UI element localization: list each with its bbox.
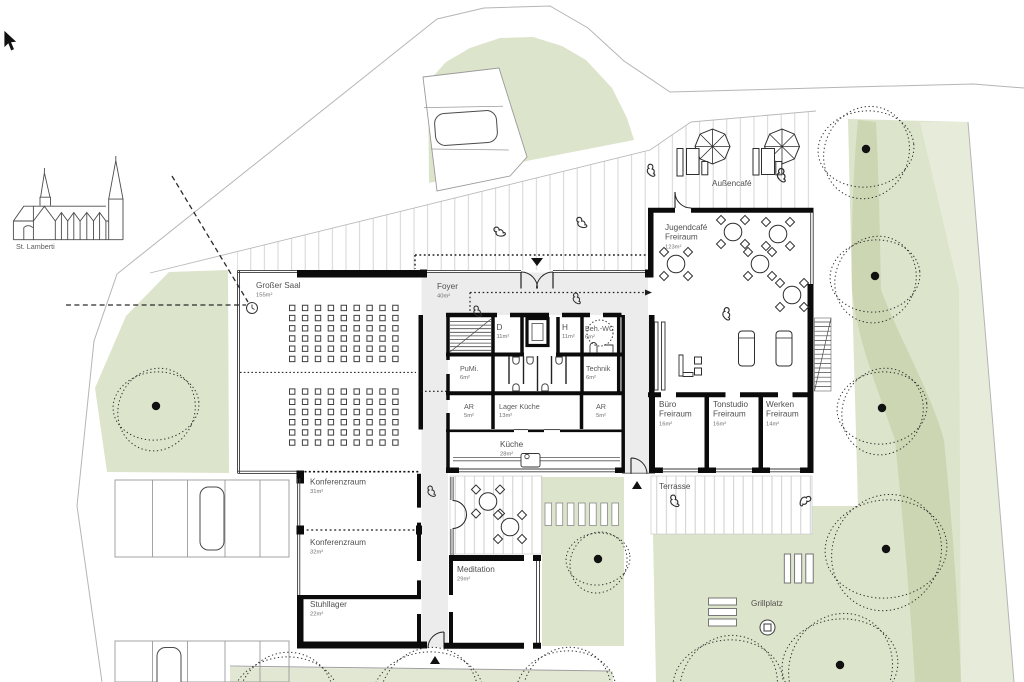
svg-text:28m²: 28m² xyxy=(500,452,513,458)
svg-text:Beh.-WC: Beh.-WC xyxy=(585,324,614,333)
svg-text:Meditation: Meditation xyxy=(457,565,495,574)
svg-text:Außencafé: Außencafé xyxy=(712,179,752,188)
svg-text:Büro: Büro xyxy=(659,400,677,409)
svg-text:5m²: 5m² xyxy=(596,413,606,419)
svg-text:6m²: 6m² xyxy=(460,375,470,381)
svg-text:13m²: 13m² xyxy=(499,413,512,419)
svg-text:AR: AR xyxy=(596,402,606,411)
svg-text:PuMi.: PuMi. xyxy=(460,364,478,373)
svg-text:St. Lamberti: St. Lamberti xyxy=(16,242,55,251)
svg-text:Freiraum: Freiraum xyxy=(665,233,698,242)
svg-text:D: D xyxy=(497,323,503,332)
svg-text:16m²: 16m² xyxy=(713,422,726,428)
svg-text:Tonstudio: Tonstudio xyxy=(713,400,748,409)
svg-text:16m²: 16m² xyxy=(659,422,672,428)
svg-text:Freiraum: Freiraum xyxy=(713,410,746,419)
svg-text:Werken: Werken xyxy=(766,400,795,409)
svg-text:Grillplatz: Grillplatz xyxy=(751,599,783,608)
svg-text:6m²: 6m² xyxy=(586,375,596,381)
svg-text:Küche: Küche xyxy=(500,440,524,449)
svg-text:32m²: 32m² xyxy=(310,550,323,556)
svg-text:22m²: 22m² xyxy=(310,612,323,618)
svg-text:11m²: 11m² xyxy=(562,334,575,340)
svg-text:Technik: Technik xyxy=(586,364,611,373)
svg-text:31m²: 31m² xyxy=(310,489,323,495)
svg-text:Freiraum: Freiraum xyxy=(766,410,799,419)
svg-text:Jugendcafé: Jugendcafé xyxy=(665,223,708,232)
svg-text:29m²: 29m² xyxy=(457,577,470,583)
svg-text:Konferenzraum: Konferenzraum xyxy=(310,478,366,487)
svg-text:14m²: 14m² xyxy=(766,422,779,428)
svg-text:Foyer: Foyer xyxy=(437,282,458,291)
svg-text:5m²: 5m² xyxy=(464,413,474,419)
svg-text:Stuhllager: Stuhllager xyxy=(310,600,347,609)
svg-text:Lager Küche: Lager Küche xyxy=(499,402,540,411)
svg-text:6m²: 6m² xyxy=(585,335,595,341)
svg-text:40m²: 40m² xyxy=(437,294,450,300)
svg-text:Freiraum: Freiraum xyxy=(659,410,692,419)
svg-text:Konferenzraum: Konferenzraum xyxy=(310,538,366,547)
svg-text:Terrasse: Terrasse xyxy=(659,482,691,491)
svg-text:H: H xyxy=(562,323,568,332)
svg-text:155m²: 155m² xyxy=(256,293,273,299)
svg-text:11m²: 11m² xyxy=(497,334,510,340)
svg-text:123m²: 123m² xyxy=(665,245,682,251)
svg-text:Großer Saal: Großer Saal xyxy=(256,281,301,290)
svg-text:AR: AR xyxy=(464,402,474,411)
